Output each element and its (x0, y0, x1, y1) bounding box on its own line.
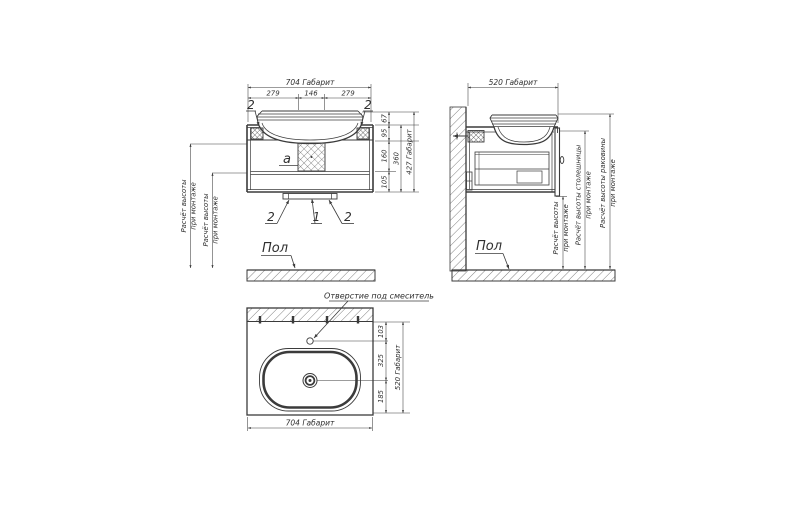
dim-h-mid: 160 (381, 150, 389, 163)
install-height1-line2: при монтаже (190, 182, 198, 230)
install-height1-line1: Расчёт высоты (180, 179, 188, 233)
floor-front (247, 270, 375, 281)
callout-top-right: 2 (364, 98, 372, 112)
install-height2-line2: при монтаже (212, 196, 220, 244)
dim-h-bottom: 105 (381, 176, 389, 189)
wall-strip-top-view (247, 308, 373, 322)
faucet-hole (307, 338, 313, 344)
door-knob (560, 157, 564, 164)
vanity-drawing: 704 Габарит 279 146 279 67 95 160 105 36… (0, 0, 800, 516)
top-view (247, 308, 373, 415)
technical-drawing-page: 704 Габарит 279 146 279 67 95 160 105 36… (0, 0, 800, 516)
floor-label-front: Пол (262, 241, 288, 256)
dim-to-faucet: 103 (377, 325, 385, 338)
dim-h-sink: 67 (381, 114, 389, 123)
callout-detail-a: а (283, 152, 291, 167)
dim-overall-depth-top: 520 Габарит (394, 344, 402, 390)
wall-bracket (468, 131, 484, 143)
dim-h-body: 360 (393, 152, 401, 165)
dim-width-right: 279 (341, 90, 355, 98)
dim-overall-depth-side: 520 Габарит (489, 78, 538, 87)
countertop-height-line2: при монтаже (585, 171, 593, 219)
sink-height-line1: Расчёт высоты раковины (599, 137, 607, 228)
dim-width-left: 279 (266, 90, 280, 98)
install-height2-line1: Расчёт высоты (202, 193, 210, 247)
wall (450, 107, 466, 271)
dim-overall-height: 427 Габарит (406, 128, 414, 174)
dim-faucet-to-drain: 325 (377, 354, 385, 367)
sink-height-line2: при монтаже (609, 159, 617, 207)
dim-h-top: 95 (381, 129, 389, 138)
dim-overall-width-front: 704 Габарит (286, 78, 335, 87)
side-install-height-line2: при монтаже (562, 204, 570, 252)
countertop-height-line1: Расчёт высоты столешницы (575, 144, 583, 245)
callout-bottom-left: 2 (267, 210, 275, 224)
callout-bottom-right: 2 (344, 210, 352, 224)
side-view-leaders (475, 254, 509, 270)
bracket-left (251, 128, 263, 139)
front-view-texts: 704 Габарит 279 146 279 67 95 160 105 36… (180, 78, 414, 256)
callout-bottom-center: 1 (313, 210, 321, 224)
dim-width-center: 146 (304, 90, 318, 98)
callout-top-left: 2 (247, 98, 255, 112)
side-install-height-line1: Расчёт высоты (552, 201, 560, 255)
dim-overall-width-top: 704 Габарит (286, 419, 335, 428)
bracket-right (357, 128, 369, 139)
floor-label-side: Пол (476, 239, 502, 254)
side-view-texts: 520 Габарит Расчёт высоты при монтаже Ра… (476, 78, 617, 254)
dim-drain-to-front: 185 (377, 390, 385, 403)
faucet-hole-label: Отверстие под смеситель (324, 292, 434, 301)
floor-side (452, 270, 615, 281)
